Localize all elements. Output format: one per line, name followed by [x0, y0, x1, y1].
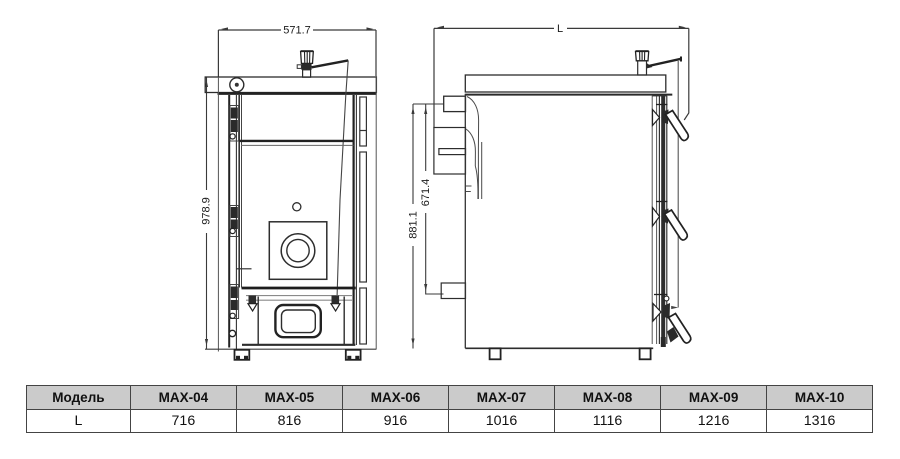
svg-text:881.1: 881.1 — [408, 211, 420, 239]
svg-text:671.4: 671.4 — [420, 179, 432, 207]
svg-text:978.9: 978.9 — [201, 197, 213, 225]
svg-text:571.7: 571.7 — [283, 25, 311, 37]
svg-text:L: L — [557, 23, 563, 35]
